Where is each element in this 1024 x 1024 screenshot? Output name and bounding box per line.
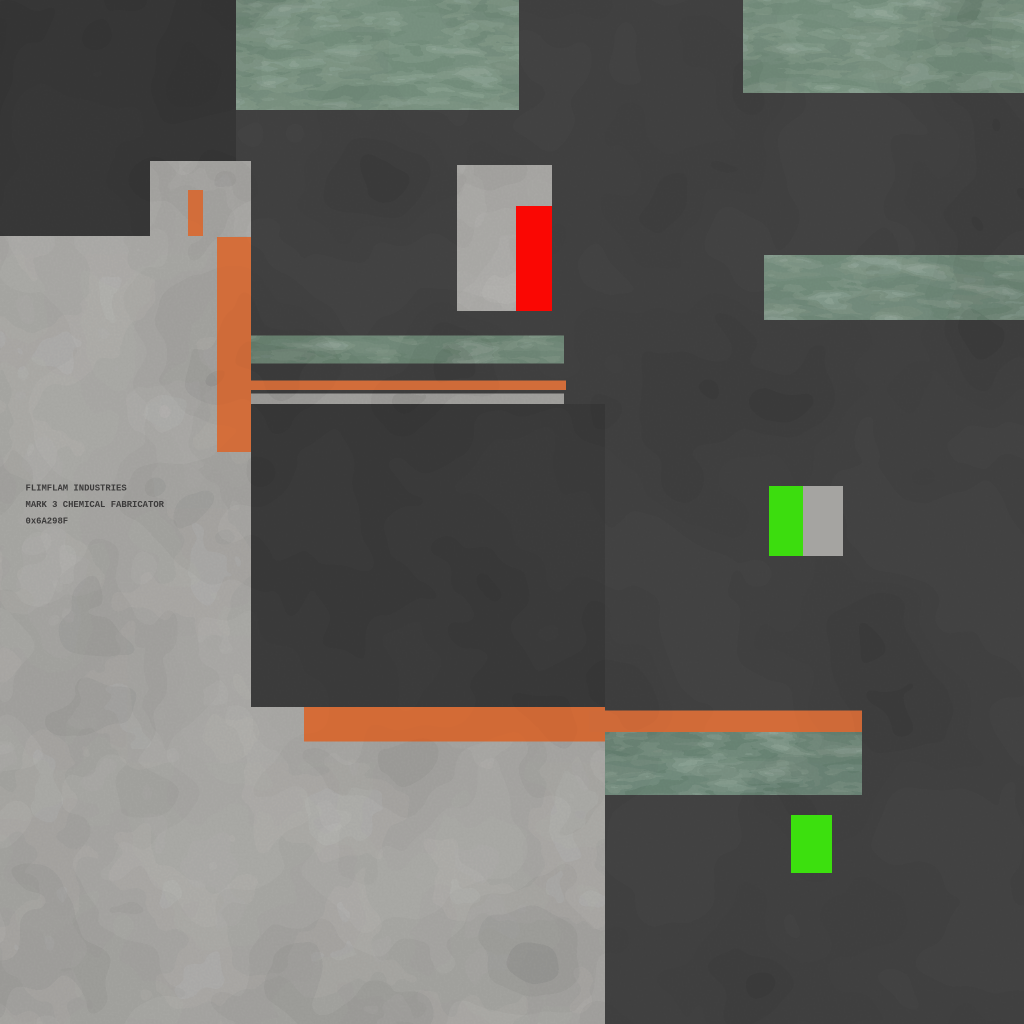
- svg-text:FLIMFLAM INDUSTRIES: FLIMFLAM INDUSTRIES: [26, 484, 128, 494]
- svg-text:MARK 3 CHEMICAL FABRICATOR: MARK 3 CHEMICAL FABRICATOR: [26, 500, 165, 510]
- svg-text:0x6A298F: 0x6A298F: [26, 517, 69, 527]
